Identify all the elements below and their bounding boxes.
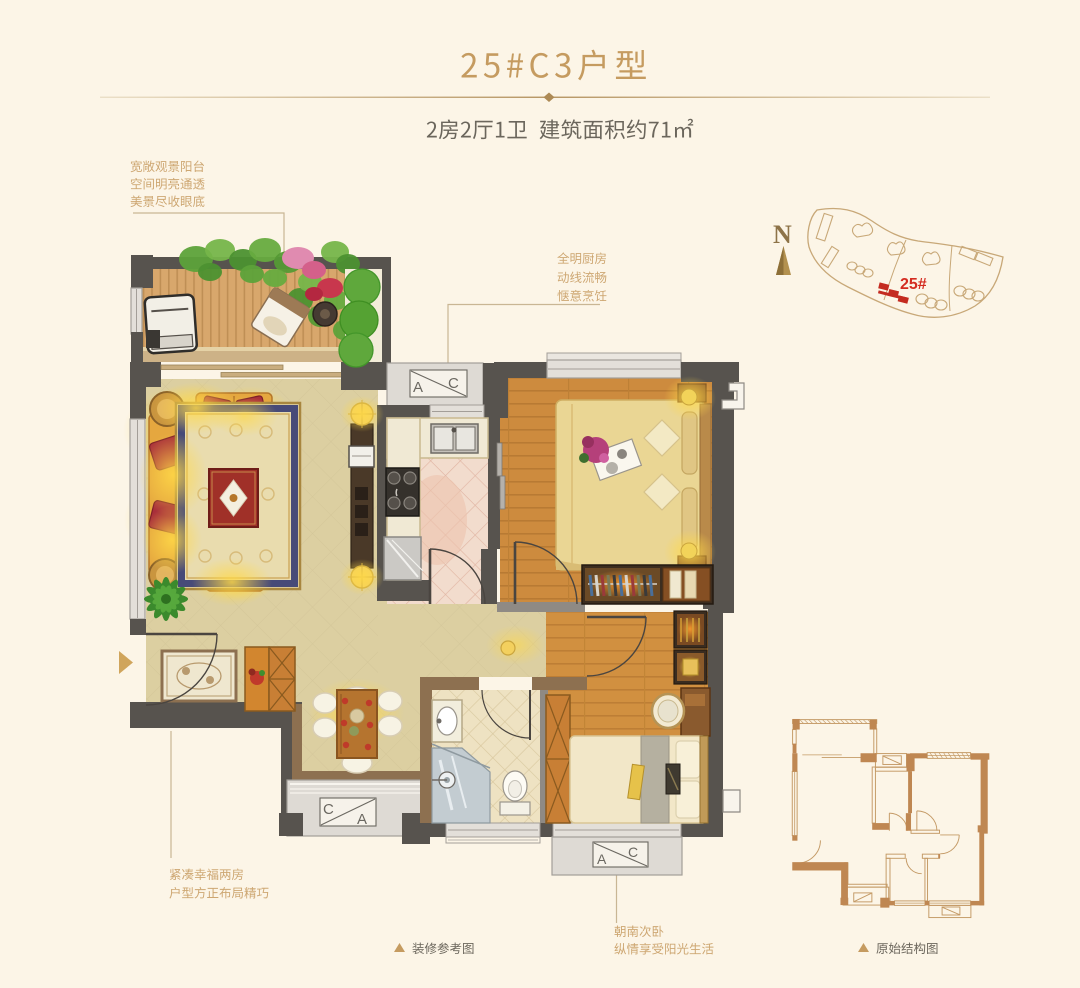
svg-text:A: A [357, 811, 367, 828]
svg-text:A: A [597, 851, 607, 867]
svg-text:C: C [448, 375, 459, 392]
svg-text:A: A [413, 379, 423, 396]
svg-text:C: C [628, 844, 638, 860]
svg-text:25#: 25# [900, 276, 927, 293]
svg-text:N: N [773, 220, 792, 249]
svg-text:C: C [323, 801, 334, 818]
